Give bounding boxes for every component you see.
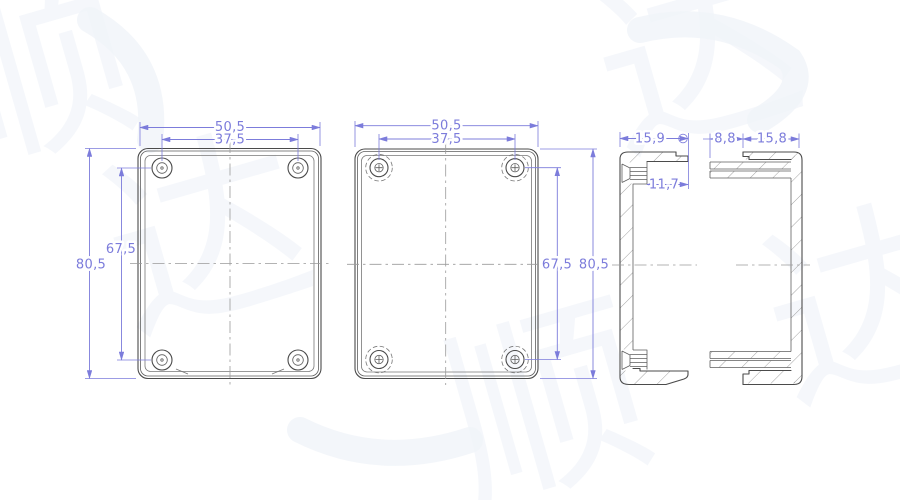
dim-side-lid-depth: 15,9 bbox=[635, 132, 665, 147]
lid-foot-section bbox=[633, 371, 688, 385]
base-flange-strip bbox=[710, 361, 791, 368]
base-bottom-ledge-section bbox=[743, 371, 795, 384]
screw-boss bbox=[502, 346, 529, 373]
base-flange-strip bbox=[710, 162, 791, 169]
cad-drawing: 顺 达 达 顺 达 bbox=[0, 0, 900, 500]
base-top-ledge-section bbox=[743, 152, 795, 160]
dim-back-hole-spacing-h: 37,5 bbox=[431, 132, 461, 147]
drawing-sheet: 顺 达 达 顺 达 bbox=[0, 0, 900, 500]
dim-front-hole-spacing-h: 37,5 bbox=[215, 133, 245, 148]
dim-back-height: 80,5 bbox=[579, 258, 609, 273]
dim-front-height: 80,5 bbox=[76, 258, 106, 273]
dim-back-hole-spacing-v: 67,5 bbox=[542, 258, 572, 273]
dim-side-flange-outer: 15,8 bbox=[757, 132, 787, 147]
base-flange-strip bbox=[710, 171, 791, 178]
dim-side-flange-inner: 8,8 bbox=[714, 132, 736, 147]
watermark-char: 达 bbox=[739, 167, 900, 446]
dim-side-boss-inset: 11,7 bbox=[649, 178, 679, 193]
screw-hole bbox=[288, 350, 308, 370]
dim-front-hole-spacing-v: 67,5 bbox=[106, 242, 136, 257]
screw-boss bbox=[366, 346, 393, 373]
base-flange-strip bbox=[710, 352, 791, 359]
base-wall-section bbox=[791, 153, 802, 383]
